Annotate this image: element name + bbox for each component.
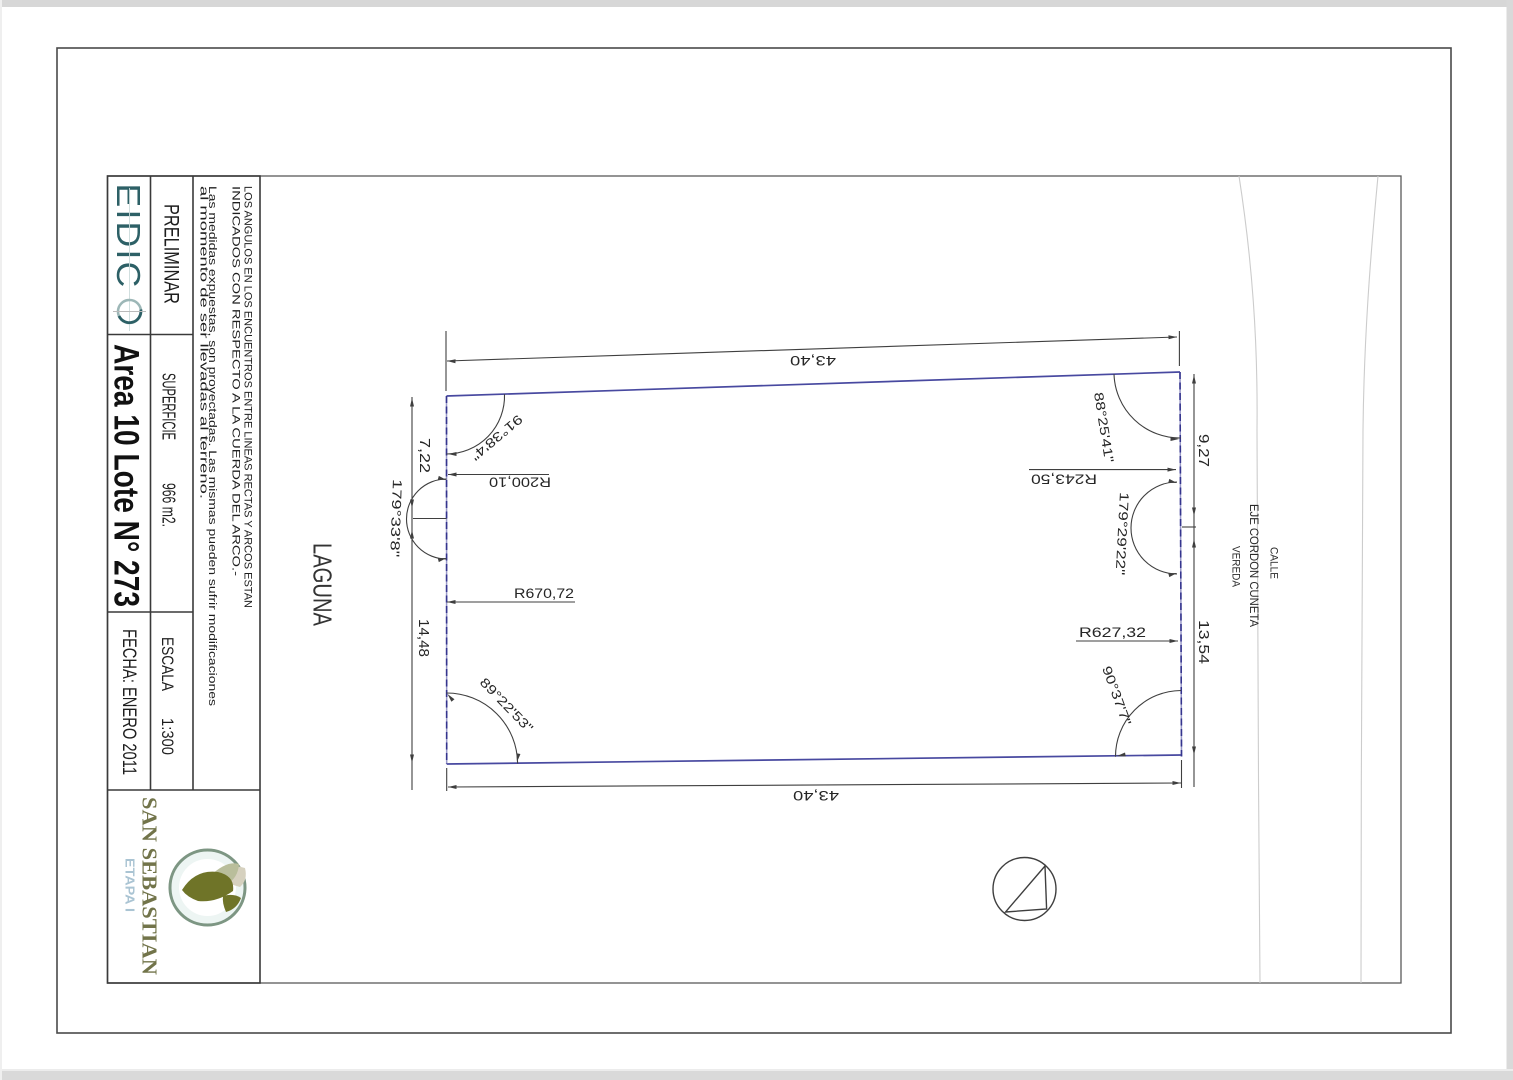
svg-text:R670,72: R670,72 xyxy=(514,586,574,601)
svg-text:EIDIC: EIDIC xyxy=(110,184,147,290)
svg-text:PRELIMINAR: PRELIMINAR xyxy=(160,204,183,304)
svg-text:SAN SEBASTIAN: SAN SEBASTIAN xyxy=(138,797,162,975)
svg-text:EJE CORDON CUNETA: EJE CORDON CUNETA xyxy=(1247,504,1259,627)
svg-text:LOS ANGULOS EN LOS ENCUENTROS: LOS ANGULOS EN LOS ENCUENTROS ENTRE LINE… xyxy=(242,186,254,608)
svg-text:Area 10 Lote N° 273: Area 10 Lote N° 273 xyxy=(107,344,146,607)
svg-text:VEREDA: VEREDA xyxy=(1230,546,1242,588)
svg-text:CALLE: CALLE xyxy=(1268,547,1280,579)
svg-text:ESCALA: ESCALA xyxy=(158,637,177,692)
svg-text:LAGUNA: LAGUNA xyxy=(308,543,338,627)
svg-text:R627,32: R627,32 xyxy=(1079,625,1146,640)
svg-text:14,48: 14,48 xyxy=(415,619,431,657)
svg-text:43,40: 43,40 xyxy=(790,353,836,369)
svg-text:R243,50: R243,50 xyxy=(1031,472,1097,488)
svg-text:FECHA: ENERO 2011: FECHA: ENERO 2011 xyxy=(118,629,139,775)
svg-text:7,22: 7,22 xyxy=(416,438,432,473)
svg-text:SUPERFICIE: SUPERFICIE xyxy=(159,373,179,440)
svg-text:966 m2.: 966 m2. xyxy=(159,483,179,527)
svg-text:43,40: 43,40 xyxy=(793,788,839,804)
svg-text:R200,10: R200,10 xyxy=(489,475,551,491)
svg-text:al momento de ser llevadas al: al momento de ser llevadas al terreno. xyxy=(198,186,210,499)
svg-text:179°33'8": 179°33'8" xyxy=(387,479,405,558)
svg-text:INDICADOS CON RESPECTO A LA CU: INDICADOS CON RESPECTO A LA CUERDA DEL A… xyxy=(230,186,242,576)
svg-text:9,27: 9,27 xyxy=(1195,434,1211,467)
svg-text:13,54: 13,54 xyxy=(1195,620,1211,664)
svg-text:ETAPA I: ETAPA I xyxy=(123,858,138,912)
svg-text:1:300: 1:300 xyxy=(158,718,177,755)
